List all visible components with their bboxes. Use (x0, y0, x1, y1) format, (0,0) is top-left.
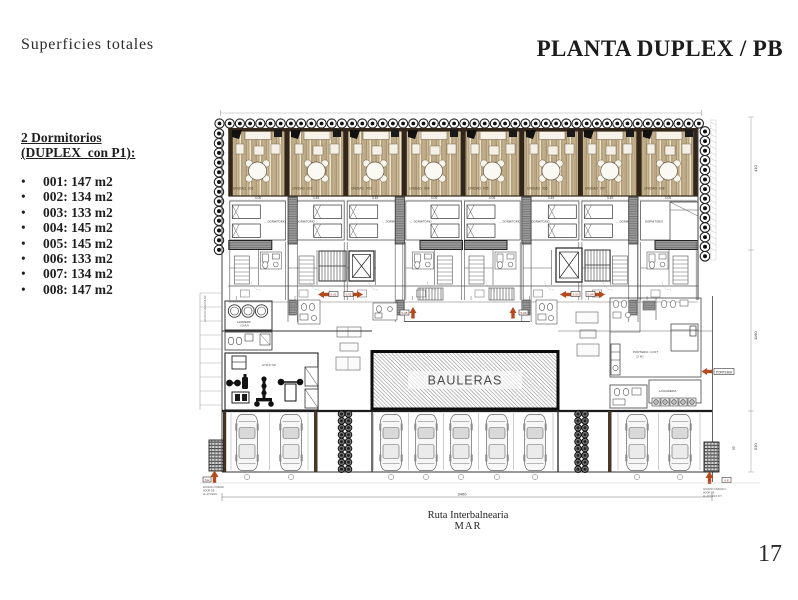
svg-text:S.06: S.06 (520, 311, 527, 315)
svg-text:53: 53 (732, 446, 736, 450)
svg-text:4.05: 4.05 (431, 196, 438, 200)
svg-text:4.05: 4.05 (489, 196, 496, 200)
svg-text:UNIDAD 004: UNIDAD 004 (409, 187, 430, 191)
svg-text:S.E: S.E (205, 478, 210, 482)
svg-text:4.05: 4.05 (665, 196, 672, 200)
svg-text:PORTERIA / LOFT: PORTERIA / LOFT (633, 350, 658, 354)
svg-text:UNIDAD 001: UNIDAD 001 (233, 187, 254, 191)
svg-text:3.45: 3.45 (372, 196, 379, 200)
svg-text:UNIDAD 007: UNIDAD 007 (585, 187, 606, 191)
svg-text:3400: 3400 (458, 492, 468, 497)
svg-text:← DORMITORIO: ← DORMITORIO (499, 220, 522, 224)
svg-text:22 M2: 22 M2 (636, 355, 644, 359)
svg-text:S.04: S.04 (587, 292, 594, 296)
svg-text:S.01: S.01 (330, 292, 337, 296)
svg-text:3.45: 3.45 (548, 196, 555, 200)
svg-text:AL ACCESO: AL ACCESO (203, 493, 217, 496)
svg-text:3.45: 3.45 (607, 196, 614, 200)
svg-text:LAVANDERIA: LAVANDERIA (659, 389, 676, 393)
svg-text:UNIDAD 005: UNIDAD 005 (468, 187, 489, 191)
svg-text:PORTERIA: PORTERIA (716, 370, 733, 374)
svg-text:410: 410 (753, 165, 758, 172)
svg-text:DORMITORIO: DORMITORIO (645, 220, 664, 224)
svg-text:← DORMITORIO: ← DORMITORIO (264, 220, 287, 224)
svg-text:UNIDAD 002: UNIDAD 002 (292, 187, 313, 191)
svg-text:ACCESO VEHICULAR: ACCESO VEHICULAR (203, 295, 207, 322)
svg-text:← DORMITORIO: ← DORMITORIO (410, 220, 433, 224)
svg-text:3.45: 3.45 (313, 196, 320, 200)
svg-text:COMUN: COMUN (240, 325, 249, 328)
svg-text:UNIDAD 008: UNIDAD 008 (644, 187, 665, 191)
svg-text:S.03: S.03 (572, 292, 579, 296)
svg-text:UNIDAD 006: UNIDAD 006 (527, 187, 548, 191)
svg-text:1160: 1160 (753, 331, 758, 340)
svg-text:LAVADERO: LAVADERO (237, 320, 251, 324)
svg-text:S.E: S.E (724, 478, 729, 482)
svg-text:S.02: S.02 (345, 292, 352, 296)
svg-text:S.05: S.05 (401, 311, 408, 315)
svg-text:GYM 27 M2: GYM 27 M2 (262, 363, 276, 367)
svg-text:530: 530 (753, 443, 758, 450)
svg-text:UNIDAD 003: UNIDAD 003 (351, 187, 372, 191)
svg-text:4.05: 4.05 (255, 196, 262, 200)
svg-text:BAULERAS: BAULERAS (428, 374, 503, 388)
